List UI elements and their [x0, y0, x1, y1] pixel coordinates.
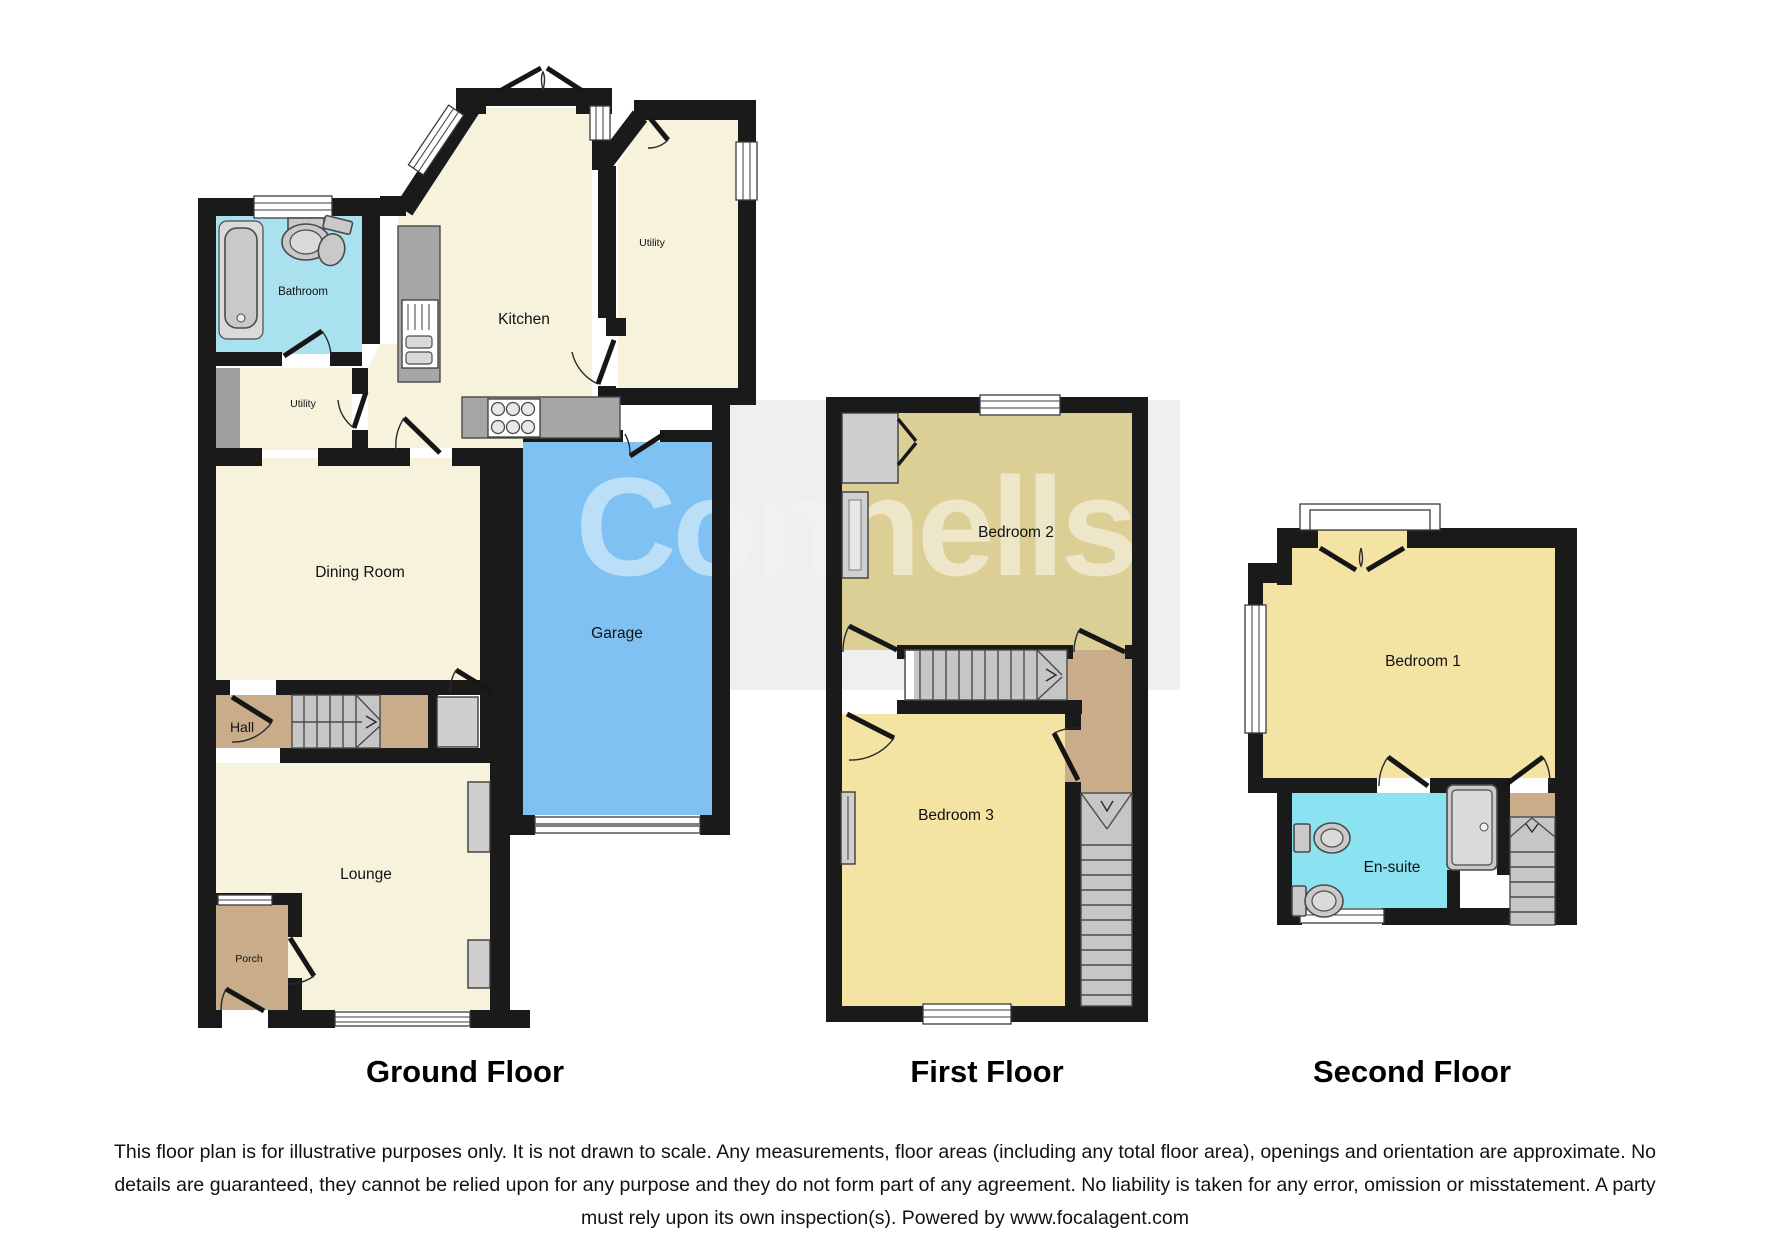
window-icon — [1300, 504, 1440, 530]
ground-floor-title: Ground Floor — [366, 1054, 564, 1089]
sink-unit-icon — [402, 300, 438, 368]
toilet-icon — [1294, 823, 1350, 853]
room-label-utility-front: Utility — [290, 398, 316, 410]
room-label-kitchen: Kitchen — [498, 311, 550, 328]
chimney-breast — [468, 782, 490, 852]
stairs-icon — [292, 695, 380, 748]
window-icon — [980, 395, 1060, 415]
bathtub-icon — [219, 221, 263, 339]
hob-icon — [462, 397, 620, 438]
room-label-utility-rear: Utility — [639, 237, 665, 249]
first-floor-title: First Floor — [910, 1054, 1063, 1089]
room-label-bedroom3: Bedroom 3 — [918, 807, 994, 824]
second-floor-title: Second Floor — [1313, 1054, 1511, 1089]
window-icon — [1245, 605, 1266, 733]
window-icon — [736, 142, 757, 200]
alcove-feature — [842, 492, 868, 578]
disclaimer-line-2: details are guaranteed, they cannot be r… — [114, 1174, 1656, 1196]
room-label-hall: Hall — [230, 719, 254, 735]
shower-icon — [1447, 785, 1497, 870]
floorplan-page: Connells Connells — [0, 0, 1771, 1240]
alcove-feature — [841, 792, 855, 864]
room-label-bedroom1: Bedroom 1 — [1385, 653, 1461, 670]
basin-icon — [1292, 885, 1343, 917]
disclaimer-line-1: This floor plan is for illustrative purp… — [114, 1141, 1656, 1163]
kitchen-counter — [398, 226, 440, 382]
window-icon — [254, 196, 332, 218]
room-label-ensuite: En-suite — [1364, 859, 1421, 876]
cupboard — [437, 697, 478, 747]
room-label-garage: Garage — [591, 625, 643, 642]
room-label-lounge: Lounge — [340, 866, 392, 883]
floor-plan-canvas: Connells Connells — [0, 0, 1771, 1240]
room-label-bathroom: Bathroom — [278, 286, 328, 298]
window-icon — [590, 106, 610, 140]
disclaimer-line-3: must rely upon its own inspection(s). Po… — [581, 1207, 1189, 1229]
disclaimer: This floor plan is for illustrative purp… — [114, 1141, 1656, 1229]
chimney-breast — [468, 940, 490, 988]
window-icon — [923, 1004, 1011, 1024]
room-label-dining: Dining Room — [315, 564, 405, 581]
garage-door-icon — [535, 817, 700, 833]
window-icon — [218, 895, 272, 905]
window-icon — [335, 1012, 470, 1026]
room-label-porch: Porch — [235, 953, 263, 965]
stairs-icon — [905, 650, 1067, 700]
chimney-breast — [842, 413, 898, 483]
stairs-icon — [1081, 793, 1132, 1006]
room-label-bedroom2: Bedroom 2 — [978, 524, 1054, 541]
stairs-icon — [1510, 817, 1555, 925]
